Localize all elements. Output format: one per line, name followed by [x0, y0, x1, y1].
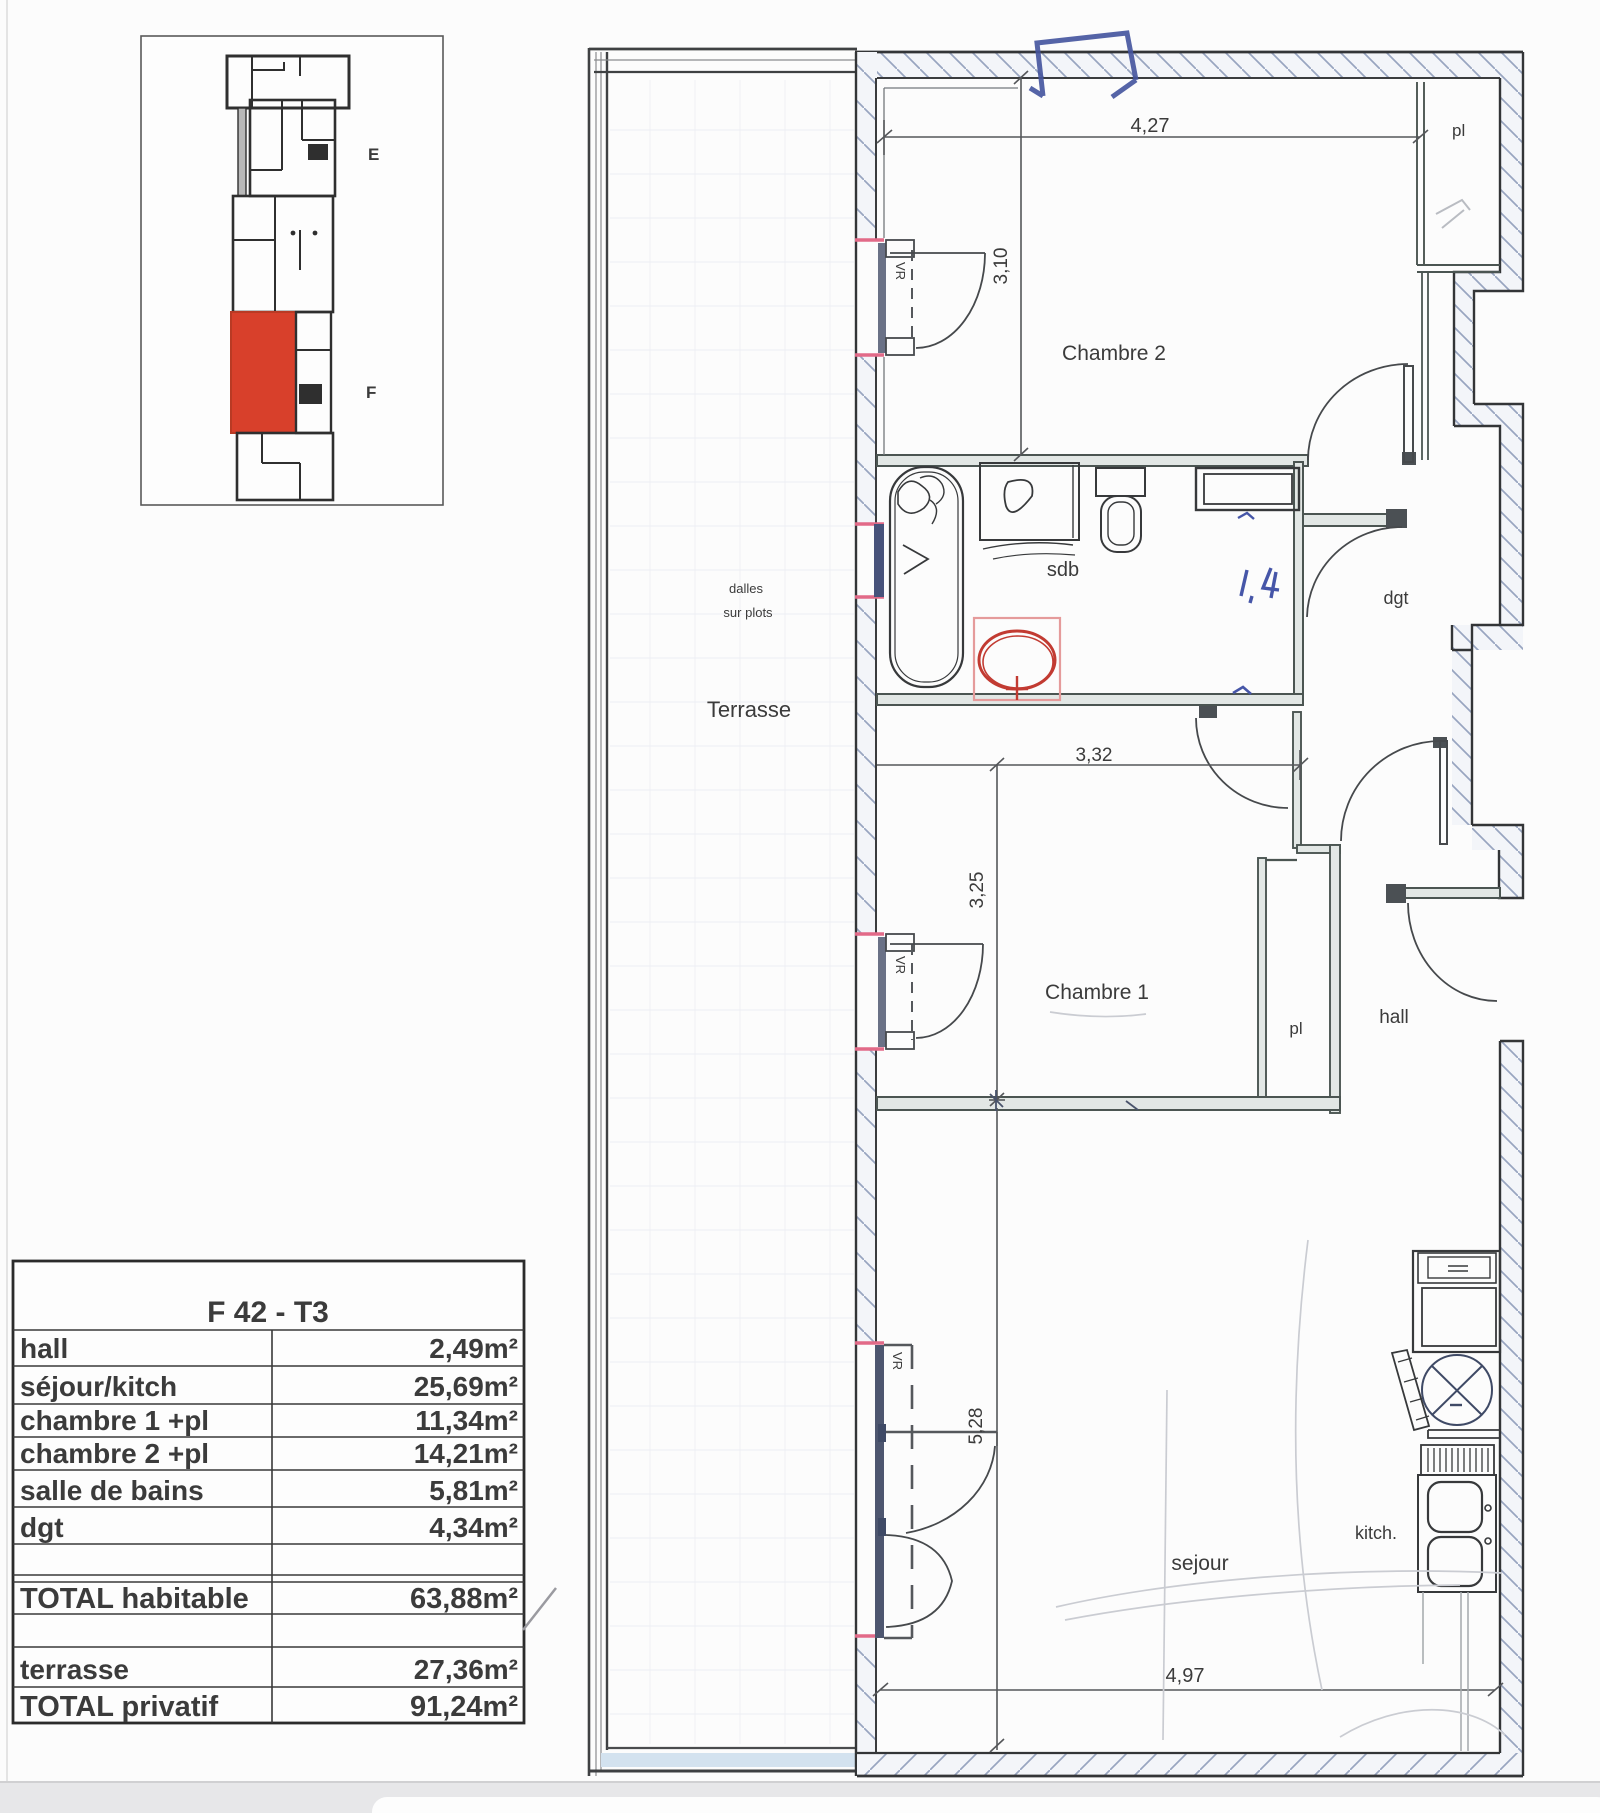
svg-text:dgt: dgt	[1383, 588, 1408, 608]
svg-text:dgt: dgt	[20, 1512, 64, 1543]
svg-text:séjour/kitch: séjour/kitch	[20, 1371, 177, 1402]
svg-text:11,34m²: 11,34m²	[415, 1405, 518, 1436]
svg-text:2,49m²: 2,49m²	[429, 1333, 518, 1364]
svg-text:chambre 1 +pl: chambre 1 +pl	[20, 1405, 209, 1436]
svg-text:3,32: 3,32	[1076, 745, 1113, 766]
svg-text:25,69m²: 25,69m²	[414, 1371, 518, 1402]
svg-text:63,88m²: 63,88m²	[410, 1583, 518, 1615]
svg-text:4,27: 4,27	[1131, 115, 1170, 137]
svg-text:91,24m²: 91,24m²	[410, 1691, 518, 1723]
svg-text:sdb: sdb	[1047, 559, 1079, 581]
svg-text:pl: pl	[1289, 1019, 1302, 1038]
svg-text:TOTAL privatif: TOTAL privatif	[20, 1691, 219, 1723]
svg-text:F 42 - T3: F 42 - T3	[207, 1296, 329, 1329]
svg-text:5,28: 5,28	[966, 1408, 987, 1445]
svg-text:VR: VR	[890, 1352, 905, 1370]
svg-text:salle de bains: salle de bains	[20, 1475, 204, 1506]
svg-text:14,21m²: 14,21m²	[414, 1438, 518, 1469]
svg-text:4,97: 4,97	[1166, 1665, 1205, 1687]
svg-text:3,10: 3,10	[991, 248, 1012, 285]
svg-text:dalles: dalles	[729, 581, 763, 596]
svg-text:hall: hall	[1379, 1007, 1409, 1028]
svg-text:terrasse: terrasse	[20, 1654, 129, 1685]
svg-text:hall: hall	[20, 1333, 68, 1364]
svg-text:VR: VR	[893, 262, 908, 280]
svg-text:TOTAL habitable: TOTAL habitable	[20, 1583, 249, 1615]
svg-text:sejour: sejour	[1171, 1552, 1228, 1575]
svg-text:Chambre 1: Chambre 1	[1045, 981, 1149, 1004]
svg-text:chambre 2 +pl: chambre 2 +pl	[20, 1438, 209, 1469]
svg-text:Chambre 2: Chambre 2	[1062, 342, 1166, 365]
svg-text:kitch.: kitch.	[1355, 1523, 1397, 1543]
svg-text:3,25: 3,25	[967, 872, 988, 909]
svg-text:27,36m²: 27,36m²	[414, 1654, 518, 1685]
svg-text:5,81m²: 5,81m²	[429, 1475, 518, 1506]
svg-text:sur plots: sur plots	[723, 605, 773, 620]
svg-text:VR: VR	[893, 956, 908, 974]
svg-text:F: F	[366, 383, 376, 402]
svg-text:4,34m²: 4,34m²	[429, 1512, 518, 1543]
svg-text:pl: pl	[1452, 121, 1465, 140]
svg-text:Terrasse: Terrasse	[707, 697, 791, 722]
svg-text:E: E	[368, 145, 379, 164]
